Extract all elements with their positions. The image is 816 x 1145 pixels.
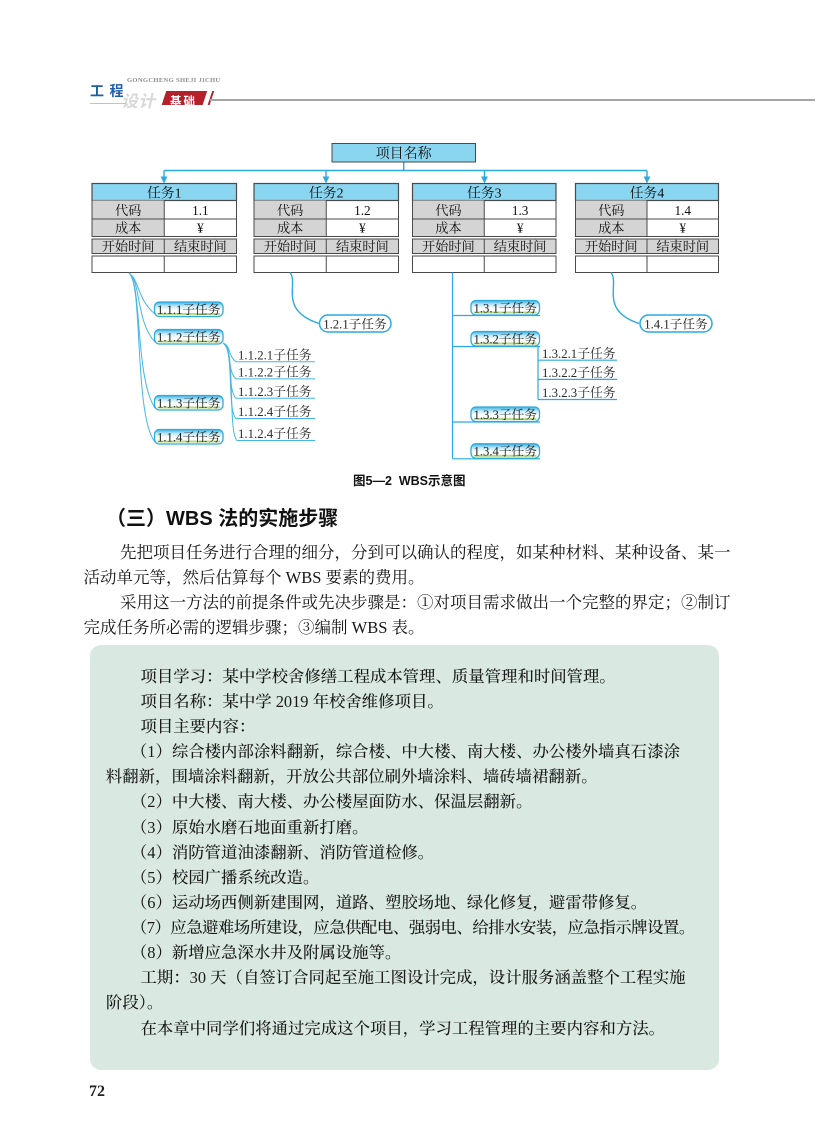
svg-text:1.3.2.3子任务: 1.3.2.3子任务 (542, 385, 616, 400)
svg-text:结束时间: 结束时间 (336, 238, 389, 254)
svg-text:1.1.2.4子任务: 1.1.2.4子任务 (238, 404, 312, 419)
svg-text:成本: 成本 (115, 220, 141, 236)
svg-text:1.3.2.1子任务: 1.3.2.1子任务 (542, 346, 616, 361)
svg-text:任务2: 任务2 (309, 186, 344, 201)
svg-text:结束时间: 结束时间 (174, 238, 227, 254)
svg-text:成本: 成本 (598, 220, 624, 236)
svg-text:1.1.2.3子任务: 1.1.2.3子任务 (238, 384, 312, 399)
svg-text:开始时间: 开始时间 (422, 239, 475, 254)
svg-text:1.4.1子任务: 1.4.1子任务 (644, 317, 708, 332)
svg-text:1.1.4子任务: 1.1.4子任务 (157, 429, 221, 444)
svg-text:开始时间: 开始时间 (264, 239, 317, 254)
svg-text:代码: 代码 (115, 203, 141, 218)
svg-text:1.3.3子任务: 1.3.3子任务 (473, 407, 537, 422)
svg-text:代码: 代码 (598, 203, 624, 218)
svg-text:1.1.2子任务: 1.1.2子任务 (157, 329, 221, 344)
svg-text:¥: ¥ (197, 221, 204, 236)
svg-text:代码: 代码 (277, 203, 303, 218)
svg-text:1.1.2.1子任务: 1.1.2.1子任务 (238, 347, 312, 362)
svg-text:1.3.4子任务: 1.3.4子任务 (473, 444, 537, 459)
svg-text:1.2: 1.2 (354, 203, 370, 218)
svg-text:任务1: 任务1 (147, 186, 182, 201)
svg-text:1.1: 1.1 (192, 203, 208, 218)
svg-text:1.1.1子任务: 1.1.1子任务 (157, 302, 221, 317)
svg-text:1.2.1子任务: 1.2.1子任务 (323, 317, 387, 332)
svg-text:1.3.2.2子任务: 1.3.2.2子任务 (542, 365, 616, 380)
svg-text:成本: 成本 (277, 220, 303, 236)
svg-text:任务3: 任务3 (467, 186, 502, 201)
svg-text:1.1.3子任务: 1.1.3子任务 (157, 395, 221, 410)
svg-text:任务4: 任务4 (630, 186, 665, 201)
svg-text:1.1.2.4子任务: 1.1.2.4子任务 (238, 426, 312, 441)
svg-text:¥: ¥ (679, 221, 686, 236)
svg-text:成本: 成本 (435, 220, 461, 236)
svg-text:开始时间: 开始时间 (102, 239, 155, 254)
svg-text:项目名称: 项目名称 (376, 146, 433, 162)
svg-text:1.1.2.2子任务: 1.1.2.2子任务 (238, 365, 312, 380)
svg-text:1.3.2子任务: 1.3.2子任务 (473, 331, 537, 346)
svg-text:开始时间: 开始时间 (585, 239, 638, 254)
svg-text:结束时间: 结束时间 (656, 238, 709, 254)
svg-text:1.3.1子任务: 1.3.1子任务 (473, 300, 537, 315)
svg-text:¥: ¥ (359, 221, 366, 236)
svg-text:1.4: 1.4 (675, 203, 692, 218)
svg-text:1.3: 1.3 (512, 203, 529, 218)
svg-text:代码: 代码 (435, 203, 461, 218)
svg-text:结束时间: 结束时间 (494, 238, 547, 254)
svg-text:¥: ¥ (517, 221, 524, 236)
